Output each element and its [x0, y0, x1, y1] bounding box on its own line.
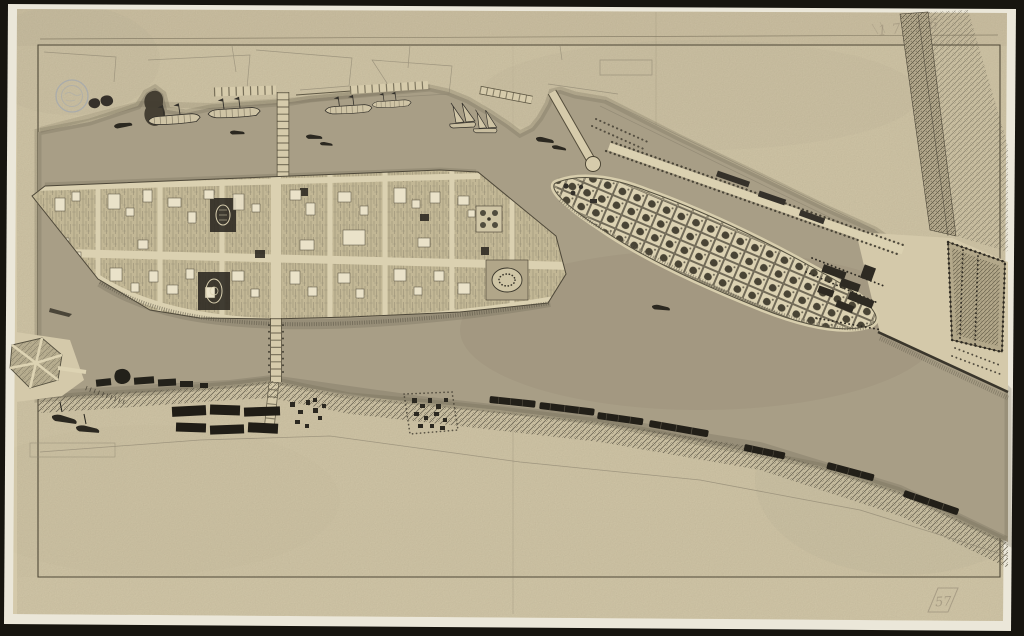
pencil-number-bottom: 57: [935, 594, 953, 610]
map-drawing: 17 16 57: [0, 0, 1024, 636]
shrub: [101, 95, 114, 106]
photographed-map-scan: 17 16 57: [0, 0, 1024, 636]
